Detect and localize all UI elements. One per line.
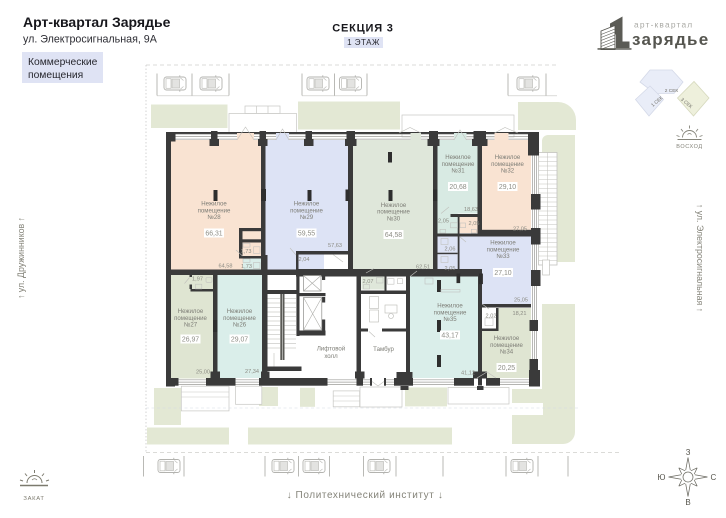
svg-text:2,02: 2,02: [486, 314, 497, 320]
svg-text:1 ЭТАЖ: 1 ЭТАЖ: [347, 38, 380, 47]
svg-text:помещения: помещения: [28, 70, 83, 81]
svg-text:2,04: 2,04: [299, 257, 310, 263]
svg-text:№30: №30: [387, 216, 401, 223]
svg-text:2 СЕК: 2 СЕК: [665, 88, 679, 94]
svg-text:№33: №33: [496, 253, 510, 260]
svg-text:25,05: 25,05: [514, 298, 528, 304]
svg-text:№35: №35: [443, 316, 457, 323]
svg-text:2,05: 2,05: [469, 221, 480, 227]
svg-text:Ю: Ю: [657, 473, 665, 482]
svg-text:18,63: 18,63: [464, 207, 478, 213]
svg-text:№32: №32: [501, 168, 515, 175]
svg-text:41,12: 41,12: [461, 371, 475, 377]
svg-text:25,00: 25,00: [196, 370, 210, 376]
svg-text:2,06: 2,06: [445, 247, 456, 253]
svg-text:Коммерческие: Коммерческие: [28, 57, 98, 68]
svg-text:57,63: 57,63: [328, 243, 342, 249]
svg-text:№26: №26: [233, 322, 247, 329]
svg-text:2,05: 2,05: [438, 218, 449, 224]
svg-text:С: С: [711, 473, 717, 482]
svg-text:27,10: 27,10: [494, 270, 511, 277]
svg-text:1,73: 1,73: [241, 249, 252, 255]
svg-text:26,97: 26,97: [182, 337, 199, 344]
svg-text:27,05: 27,05: [513, 227, 527, 233]
svg-text:2,05: 2,05: [445, 266, 456, 272]
svg-text:В: В: [685, 498, 690, 507]
svg-text:№29: №29: [300, 214, 314, 221]
svg-text:62,51: 62,51: [416, 265, 430, 271]
svg-text:↓ Политехнический институт ↓: ↓ Политехнический институт ↓: [287, 490, 444, 501]
svg-text:↑ ул. Электросигнальная ↑: ↑ ул. Электросигнальная ↑: [695, 204, 705, 312]
svg-text:18,21: 18,21: [513, 311, 527, 317]
svg-text:59,55: 59,55: [298, 231, 315, 238]
svg-text:↑ ул. Дружинников ↑: ↑ ул. Дружинников ↑: [16, 217, 26, 299]
svg-text:1,73: 1,73: [241, 264, 252, 270]
svg-text:2,07: 2,07: [363, 279, 374, 285]
svg-text:зарядье: зарядье: [632, 30, 710, 49]
svg-text:29,07: 29,07: [231, 337, 248, 344]
svg-text:27,34: 27,34: [245, 369, 259, 375]
svg-text:З: З: [686, 448, 691, 457]
svg-text:Лифтовой: Лифтовой: [317, 346, 345, 353]
svg-text:64,58: 64,58: [219, 264, 233, 270]
svg-text:№34: №34: [500, 349, 514, 356]
svg-text:Тамбур: Тамбур: [373, 346, 394, 353]
svg-text:Арт-квартал Зарядье: Арт-квартал Зарядье: [23, 14, 171, 30]
svg-text:ЗАКАТ: ЗАКАТ: [23, 496, 44, 502]
svg-text:№27: №27: [184, 322, 198, 329]
svg-text:№31: №31: [451, 168, 465, 175]
svg-text:43,17: 43,17: [441, 333, 458, 340]
svg-text:29,10: 29,10: [499, 184, 516, 191]
svg-text:20,68: 20,68: [449, 184, 466, 191]
svg-text:1,97: 1,97: [192, 277, 203, 283]
svg-text:ВОСХОД: ВОСХОД: [676, 144, 702, 150]
svg-text:66,31: 66,31: [205, 231, 222, 238]
svg-text:20,25: 20,25: [498, 365, 515, 372]
svg-text:№28: №28: [207, 214, 221, 221]
svg-text:холл: холл: [324, 353, 338, 360]
svg-text:СЕКЦИЯ 3: СЕКЦИЯ 3: [332, 23, 393, 35]
svg-text:ул. Электросигнальная, 9А: ул. Электросигнальная, 9А: [23, 34, 158, 46]
svg-text:64,58: 64,58: [385, 232, 402, 239]
svg-text:арт-квартал: арт-квартал: [634, 20, 693, 30]
